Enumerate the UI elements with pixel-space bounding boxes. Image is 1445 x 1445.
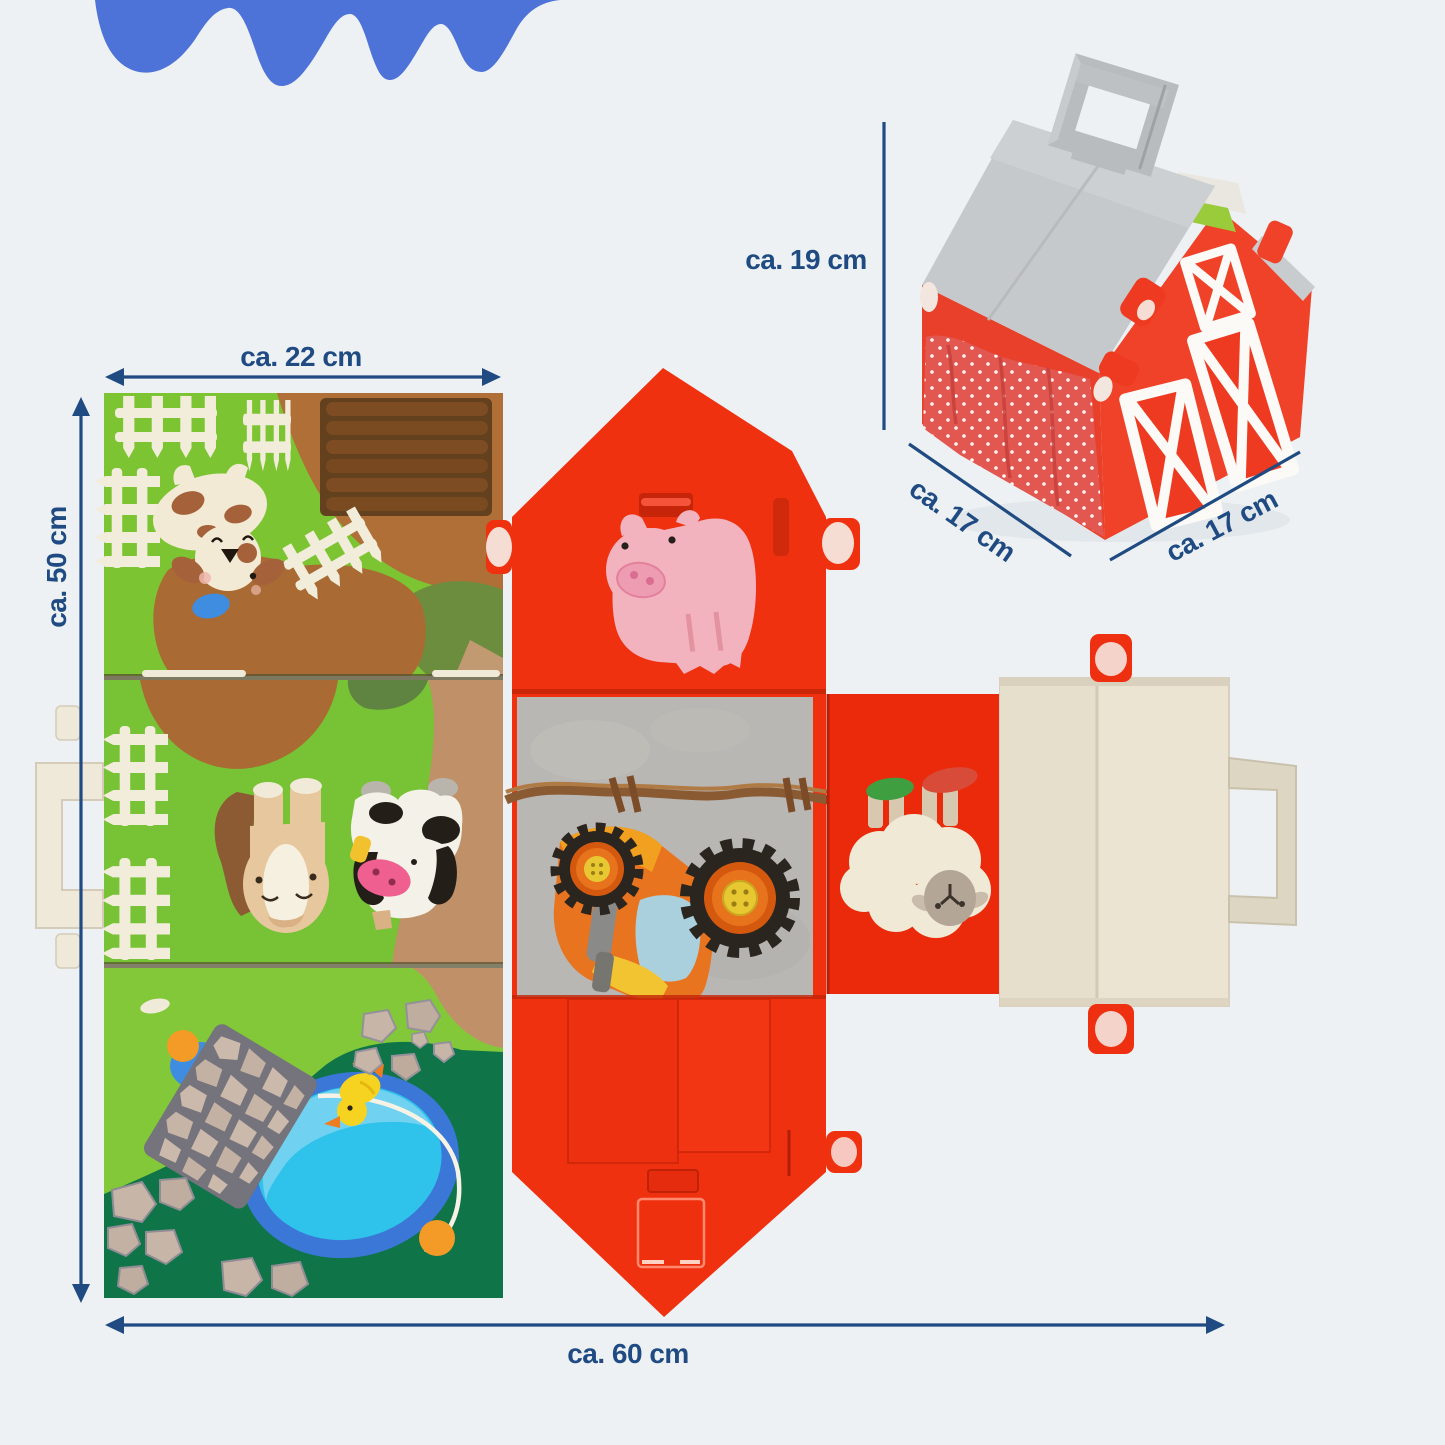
svg-text:ca. 60 cm: ca. 60 cm [567, 1338, 689, 1369]
svg-text:ca. 50 cm: ca. 50 cm [41, 506, 72, 628]
svg-text:ca. 22 cm: ca. 22 cm [240, 341, 362, 372]
svg-text:ca. 19 cm: ca. 19 cm [745, 244, 867, 275]
